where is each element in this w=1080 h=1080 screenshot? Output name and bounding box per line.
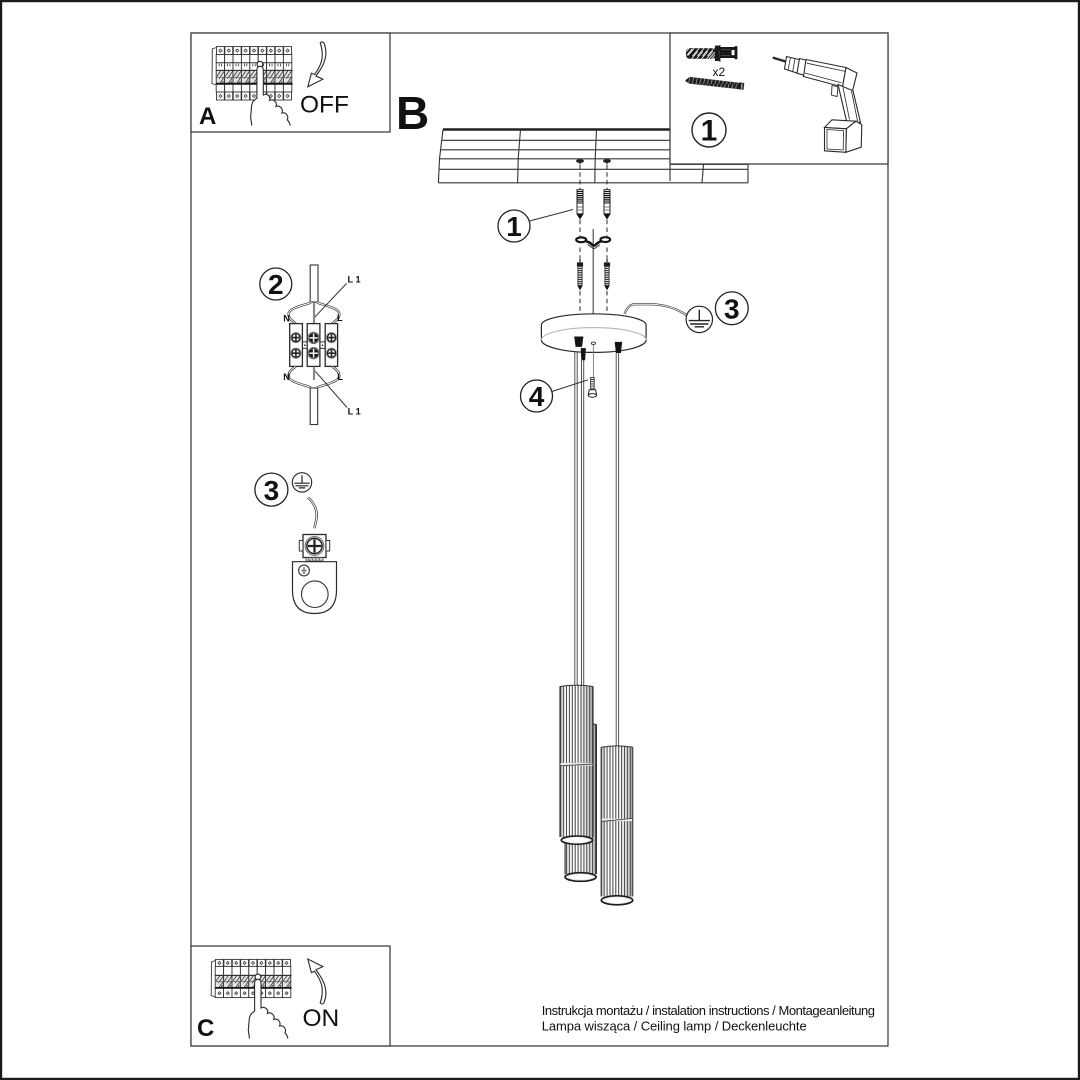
svg-text:L 1: L 1 — [348, 406, 361, 416]
svg-text:Instrukcja montażu / instalati: Instrukcja montażu / instalation instruc… — [542, 1003, 875, 1018]
svg-text:L 1: L 1 — [348, 275, 361, 285]
svg-text:N: N — [283, 313, 290, 323]
svg-text:ON: ON — [303, 1005, 340, 1032]
svg-text:Lampa wisząca / Ceiling lamp /: Lampa wisząca / Ceiling lamp / Deckenleu… — [542, 1019, 807, 1034]
svg-text:3: 3 — [724, 294, 740, 325]
svg-text:3: 3 — [264, 475, 280, 506]
svg-text:OFF: OFF — [300, 92, 349, 119]
svg-text:4: 4 — [529, 381, 545, 412]
svg-text:L: L — [337, 372, 343, 382]
svg-text:1: 1 — [701, 115, 718, 148]
svg-text:N: N — [283, 372, 290, 382]
svg-text:x2: x2 — [713, 65, 726, 79]
svg-text:A: A — [199, 103, 216, 130]
svg-text:C: C — [197, 1015, 214, 1042]
svg-text:B: B — [396, 87, 429, 139]
svg-text:L: L — [337, 313, 343, 323]
svg-text:1: 1 — [506, 211, 522, 242]
svg-text:2: 2 — [268, 269, 284, 300]
